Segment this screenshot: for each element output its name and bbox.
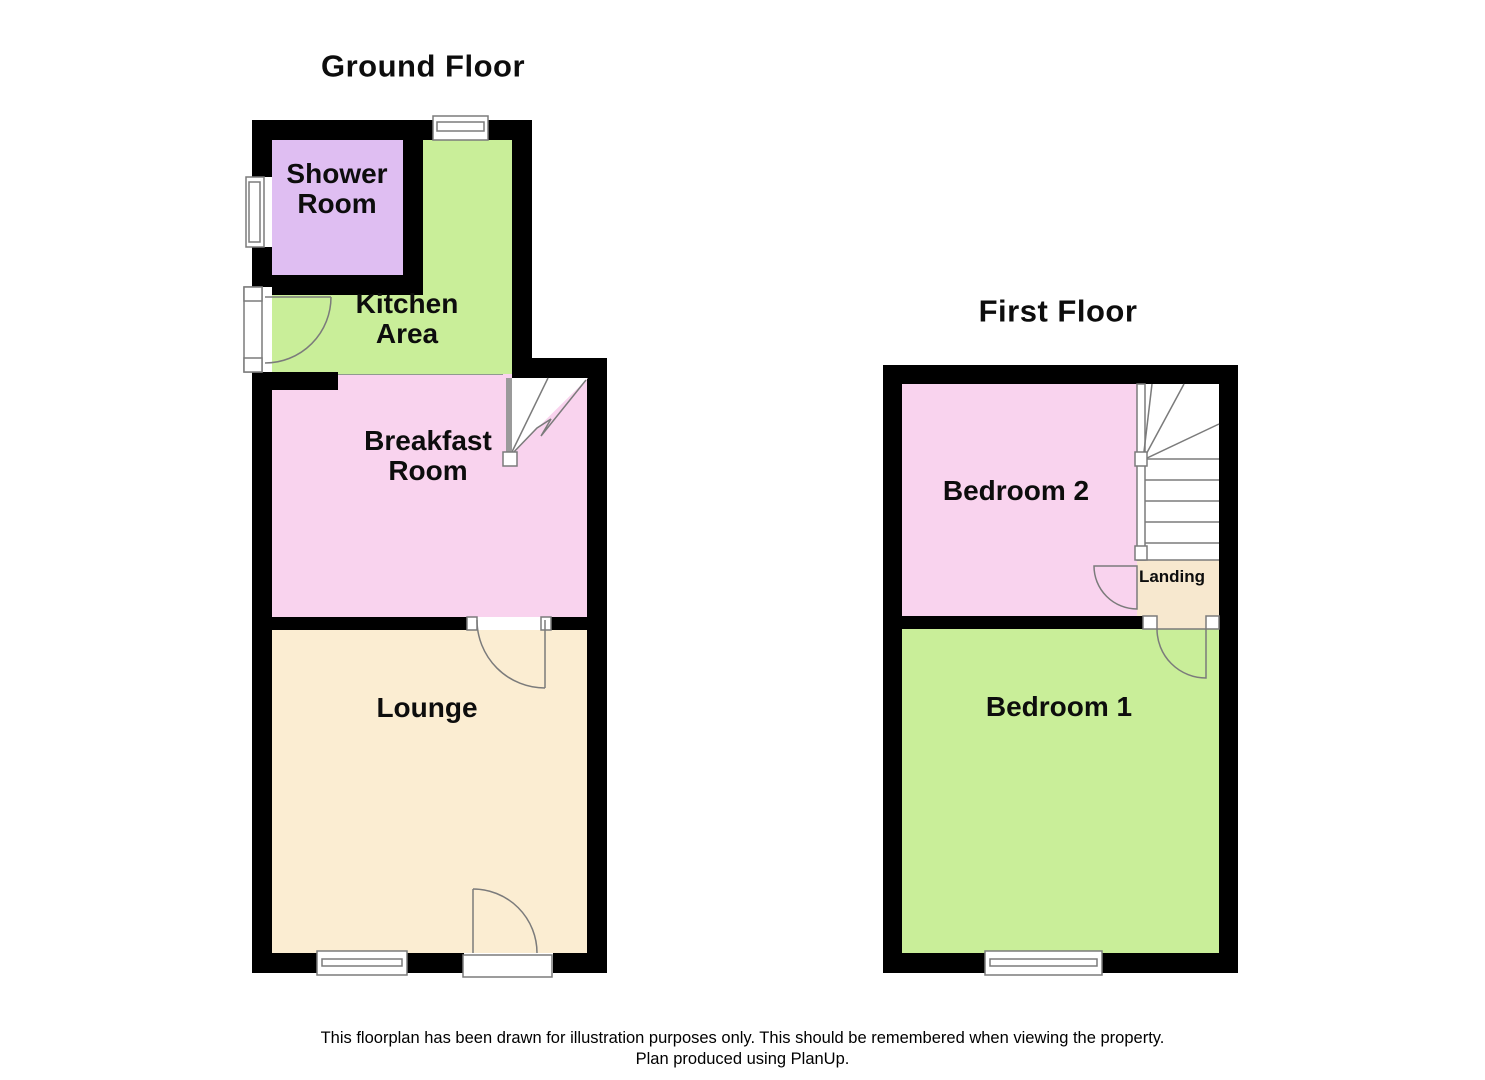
disclaimer-text: This floorplan has been drawn for illust… [0, 1028, 1485, 1070]
wall-segment [587, 358, 607, 973]
wall-segment [553, 953, 607, 973]
wall-segment [252, 247, 272, 287]
bedroom-1-label: Bedroom 1 [986, 692, 1132, 722]
stair-stringer [506, 378, 512, 454]
window [433, 116, 488, 140]
wall-segment [551, 617, 587, 630]
lounge-floor [272, 630, 587, 953]
wall-segment [1219, 384, 1238, 953]
bedroom-1-floor [902, 629, 1219, 953]
landing-label: Landing [1139, 568, 1205, 586]
wall-segment [252, 120, 272, 177]
wall-segment [262, 617, 467, 630]
door-opening [477, 617, 541, 630]
wall-segment [403, 140, 423, 295]
wall-segment [1102, 953, 1238, 973]
lounge-label: Lounge [376, 693, 477, 723]
door-jamb [244, 287, 262, 301]
wall-segment [512, 120, 532, 378]
shower-room-label: Shower Room [286, 159, 387, 219]
door-jamb [1143, 616, 1157, 629]
first-floor-title: First Floor [979, 294, 1138, 327]
wall-segment [252, 372, 338, 390]
wall-segment [407, 953, 464, 973]
first-floor-windows [985, 951, 1102, 975]
wall-segment [902, 616, 1143, 629]
door-jamb [467, 617, 477, 630]
stair-stringer [1137, 384, 1145, 560]
wall-segment [252, 953, 317, 973]
first-floor-plan [883, 365, 1238, 975]
window [317, 951, 407, 975]
door-jamb [1206, 616, 1219, 629]
wall-segment [883, 365, 1238, 384]
stairwell-floor [1145, 384, 1219, 560]
wall-segment [252, 372, 272, 953]
wall-segment [252, 120, 433, 140]
floorplan-page: Ground Floor First Floor Shower Room Kit… [0, 0, 1485, 1080]
landing-door-opening [1157, 616, 1206, 629]
disclaimer-line-1: This floorplan has been drawn for illust… [0, 1028, 1485, 1049]
window [985, 951, 1102, 975]
bedroom-2-label: Bedroom 2 [943, 476, 1089, 506]
wall-segment [883, 953, 985, 973]
door-jamb [541, 617, 551, 630]
kitchen-area-label: Kitchen Area [356, 289, 459, 349]
breakfast-room-label: Breakfast Room [364, 426, 492, 486]
stair-newel-post [503, 452, 517, 466]
wall-segment [883, 384, 902, 953]
stair-newel-post [1135, 546, 1147, 560]
ground-floor-title: Ground Floor [321, 49, 525, 82]
stair-newel-post [1135, 452, 1147, 466]
floorplan-graphics [0, 0, 1485, 1080]
door-threshold [463, 955, 552, 977]
door-jamb [244, 358, 262, 372]
disclaimer-line-2: Plan produced using PlanUp. [0, 1049, 1485, 1070]
ground-floor-plan [244, 116, 607, 977]
